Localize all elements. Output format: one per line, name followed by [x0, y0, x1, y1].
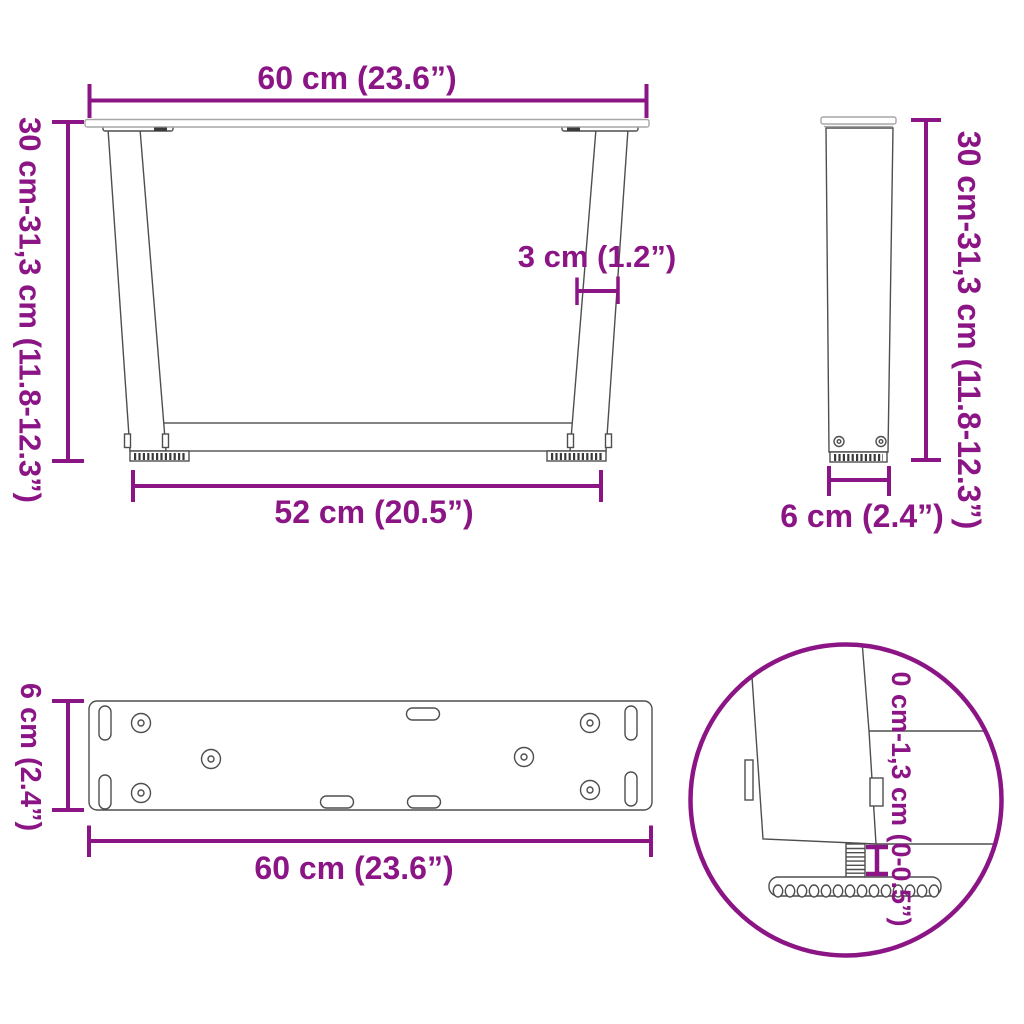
left-leg: [108, 129, 166, 451]
knurl-dot: [785, 885, 794, 897]
knurl-dot: [773, 885, 782, 897]
dim-label-side-height: 30 cm-31,3 cm (11.8-12.3”): [951, 131, 987, 529]
knurl-dot: [821, 885, 830, 897]
side-leg: [826, 128, 893, 452]
knurl-dot: [917, 885, 926, 897]
leg-right-tab-detail: [870, 778, 883, 806]
dim-label-side-depth: 6 cm (2.4”): [780, 498, 944, 534]
dim-front-height: 30 cm-31,3 cm (11.8-12.3”): [13, 117, 85, 503]
left-leg-outer-tab: [125, 434, 131, 448]
leg-left-tab-detail: [745, 760, 753, 800]
right-leg-outer-tab: [606, 434, 612, 448]
foot-detail-view: 0 cm-1,3 cm (0-0.5”): [691, 628, 1011, 956]
dim-side-height: 30 cm-31,3 cm (11.8-12.3”): [911, 120, 987, 529]
dim-label-bottom-width: 52 cm (20.5”): [274, 494, 473, 530]
knurl-dot: [845, 885, 854, 897]
knurl-dot: [833, 885, 842, 897]
left-screw-dash: [154, 128, 167, 132]
knurl-dot: [797, 885, 806, 897]
dim-label-plate-depth: 6 cm (2.4”): [14, 683, 46, 831]
bottom-crossbar: [163, 423, 573, 451]
tabletop-edge: [85, 120, 649, 128]
knurl-dot: [869, 885, 878, 897]
left-leg-inner-tab: [163, 434, 169, 448]
thread-lines: [846, 849, 865, 874]
right-leg-inner-tab: [568, 434, 574, 448]
dim-plate-depth: 6 cm (2.4”): [14, 683, 84, 831]
dim-front-bottom-width: 52 cm (20.5”): [133, 470, 601, 530]
product-dimension-diagram: 60 cm (23.6”) 30 cm-31,3 cm (11.8-12.3”)…: [0, 0, 1024, 1024]
dim-label-top-width: 60 cm (23.6”): [257, 60, 456, 96]
knurl-dot: [857, 885, 866, 897]
dim-label-foot-adjustment: 0 cm-1,3 cm (0-0.5”): [886, 671, 916, 926]
knurl-dot: [809, 885, 818, 897]
dim-plate-width: 60 cm (23.6”): [89, 826, 651, 887]
mounting-plate: [89, 701, 652, 810]
dim-front-top-width: 60 cm (23.6”): [88, 60, 648, 118]
dim-label-thickness: 3 cm (1.2”): [518, 239, 677, 274]
knurl-dot: [929, 885, 938, 897]
side-view: 30 cm-31,3 cm (11.8-12.3”) 6 cm (2.4”): [780, 117, 987, 534]
technical-drawing: 60 cm (23.6”) 30 cm-31,3 cm (11.8-12.3”)…: [0, 0, 1024, 1024]
right-screw-dash: [567, 128, 580, 132]
dim-label-plate-width: 60 cm (23.6”): [254, 850, 453, 886]
front-view: 60 cm (23.6”) 30 cm-31,3 cm (11.8-12.3”)…: [13, 60, 677, 530]
mounting-plate-view: 6 cm (2.4”) 60 cm (23.6”): [14, 683, 652, 886]
leg-bottom-detail: [751, 628, 876, 844]
dim-label-height-range: 30 cm-31,3 cm (11.8-12.3”): [13, 117, 48, 503]
side-mounting-bar: [821, 117, 896, 124]
dim-side-depth: 6 cm (2.4”): [780, 466, 944, 534]
